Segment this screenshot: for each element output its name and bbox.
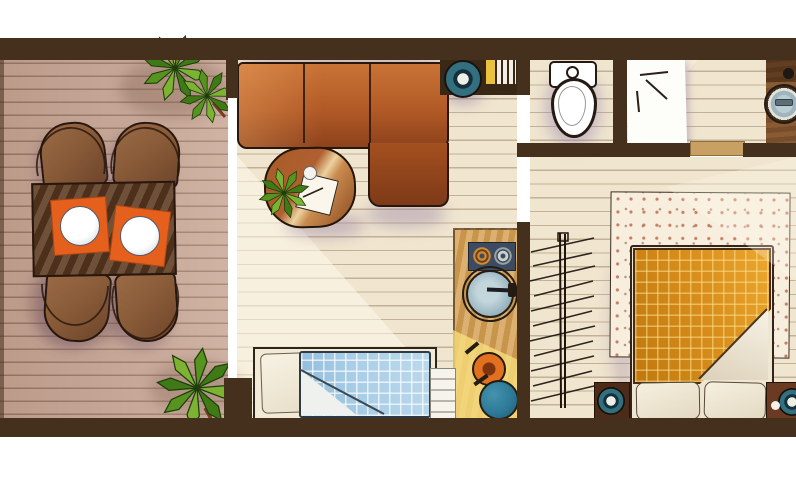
bathroom-divider-wall (613, 58, 627, 145)
deck-door-post-top (226, 38, 238, 100)
deck-door-post-bottom (224, 378, 252, 423)
small-white-knob (771, 401, 780, 410)
washbasin-drain (775, 99, 793, 106)
faucet-mount (508, 283, 516, 297)
burner-icon (472, 246, 492, 266)
corner-sofa-back-section (237, 62, 449, 149)
corner-sofa-chaise (368, 143, 449, 207)
plate-left (60, 206, 100, 246)
mid-wall-lower (517, 222, 530, 422)
burner-icon (494, 247, 512, 265)
yellow-book (486, 60, 495, 84)
bath-mat (626, 58, 687, 145)
pillow-right (704, 381, 767, 421)
kitchen-sink (466, 270, 514, 318)
deck-door-opening (228, 98, 237, 383)
speaker-icon (444, 60, 482, 98)
bathroom-bottom-wall-right (743, 143, 796, 157)
white-slat-shelf (430, 368, 456, 420)
counter-knob (783, 68, 794, 79)
plant-shadow-top (120, 58, 230, 118)
white-books (497, 59, 516, 84)
mid-wall-upper (517, 38, 530, 95)
speaker-icon (597, 387, 625, 415)
teal-pot (479, 380, 519, 420)
wall-left-edge (0, 38, 4, 437)
wall-top (0, 38, 796, 60)
sofa-cushion-seam (369, 64, 371, 143)
cup (303, 166, 317, 180)
bathroom-bottom-wall-left (517, 143, 690, 157)
pillow-left (636, 381, 701, 420)
wall-bottom (0, 418, 796, 437)
bathroom-door-leaf (690, 141, 745, 156)
mid-door-opening (518, 95, 529, 223)
sofa-cushion-seam (303, 64, 305, 143)
floor-plan-illustration (0, 0, 796, 480)
plate-right (120, 216, 160, 256)
